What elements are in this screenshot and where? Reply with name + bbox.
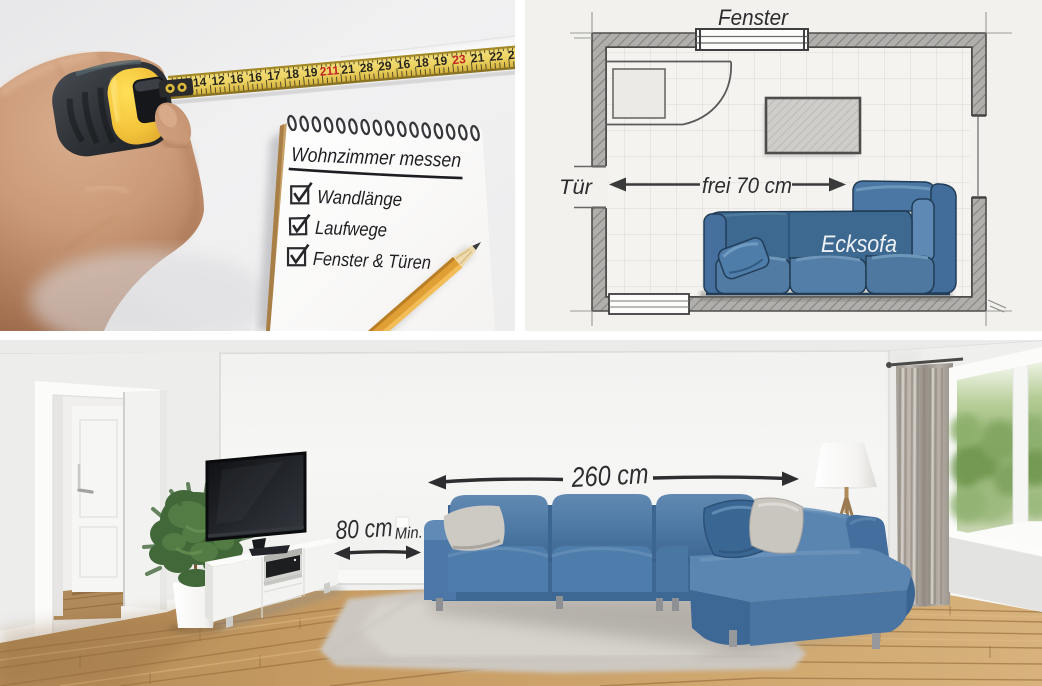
svg-text:Fenster & Türen: Fenster & Türen (313, 249, 432, 274)
svg-text:12: 12 (211, 73, 226, 88)
svg-text:Laufwege: Laufwege (315, 218, 388, 241)
svg-text:16: 16 (396, 57, 411, 72)
svg-text:211: 211 (319, 63, 340, 79)
svg-text:Ecksofa: Ecksofa (821, 231, 897, 258)
svg-text:18: 18 (285, 67, 300, 82)
svg-text:80 cm: 80 cm (335, 512, 393, 545)
svg-text:21: 21 (470, 50, 485, 65)
svg-text:19: 19 (433, 54, 448, 69)
svg-text:Min.: Min. (394, 525, 423, 543)
svg-text:28: 28 (359, 60, 374, 75)
svg-text:frei 70 cm: frei 70 cm (702, 173, 792, 198)
svg-text:Tür: Tür (559, 176, 593, 199)
svg-text:16: 16 (229, 71, 244, 86)
svg-text:29: 29 (378, 58, 393, 73)
svg-text:14: 14 (192, 75, 207, 90)
svg-text:Wandlänge: Wandlänge (317, 187, 403, 211)
svg-text:23: 23 (452, 52, 467, 67)
svg-text:22: 22 (489, 49, 504, 64)
svg-text:17: 17 (267, 68, 282, 83)
svg-text:21: 21 (341, 62, 356, 77)
svg-text:Fenster: Fenster (718, 5, 790, 30)
svg-text:16: 16 (248, 70, 263, 85)
svg-text:26: 26 (507, 47, 522, 62)
svg-text:18: 18 (415, 55, 430, 70)
svg-text:19: 19 (304, 65, 319, 80)
svg-text:260 cm: 260 cm (570, 458, 649, 493)
